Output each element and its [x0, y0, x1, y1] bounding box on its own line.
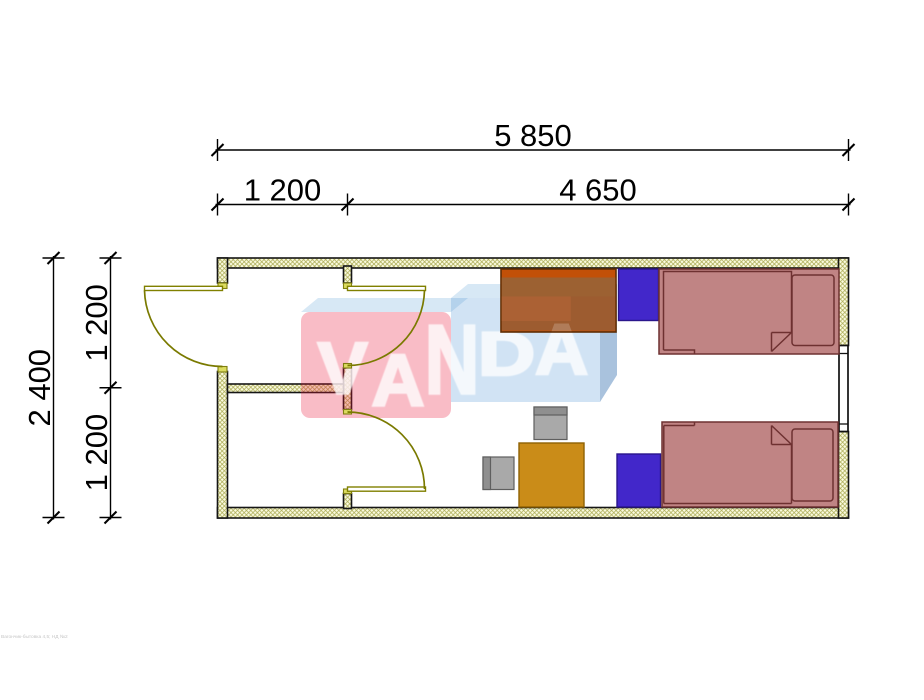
- svg-text:1 200: 1 200: [79, 284, 114, 362]
- svg-text:V: V: [318, 326, 368, 409]
- svg-text:2 400: 2 400: [22, 349, 57, 427]
- svg-text:A: A: [372, 339, 425, 422]
- svg-text:Вагончик-бытовка 4,5; НД №2: Вагончик-бытовка 4,5; НД №2: [1, 634, 68, 640]
- svg-text:1 200: 1 200: [79, 414, 114, 492]
- svg-text:N: N: [425, 304, 480, 414]
- svg-text:1 200: 1 200: [244, 173, 322, 208]
- svg-text:4 650: 4 650: [559, 173, 637, 208]
- svg-text:5 850: 5 850: [494, 118, 572, 153]
